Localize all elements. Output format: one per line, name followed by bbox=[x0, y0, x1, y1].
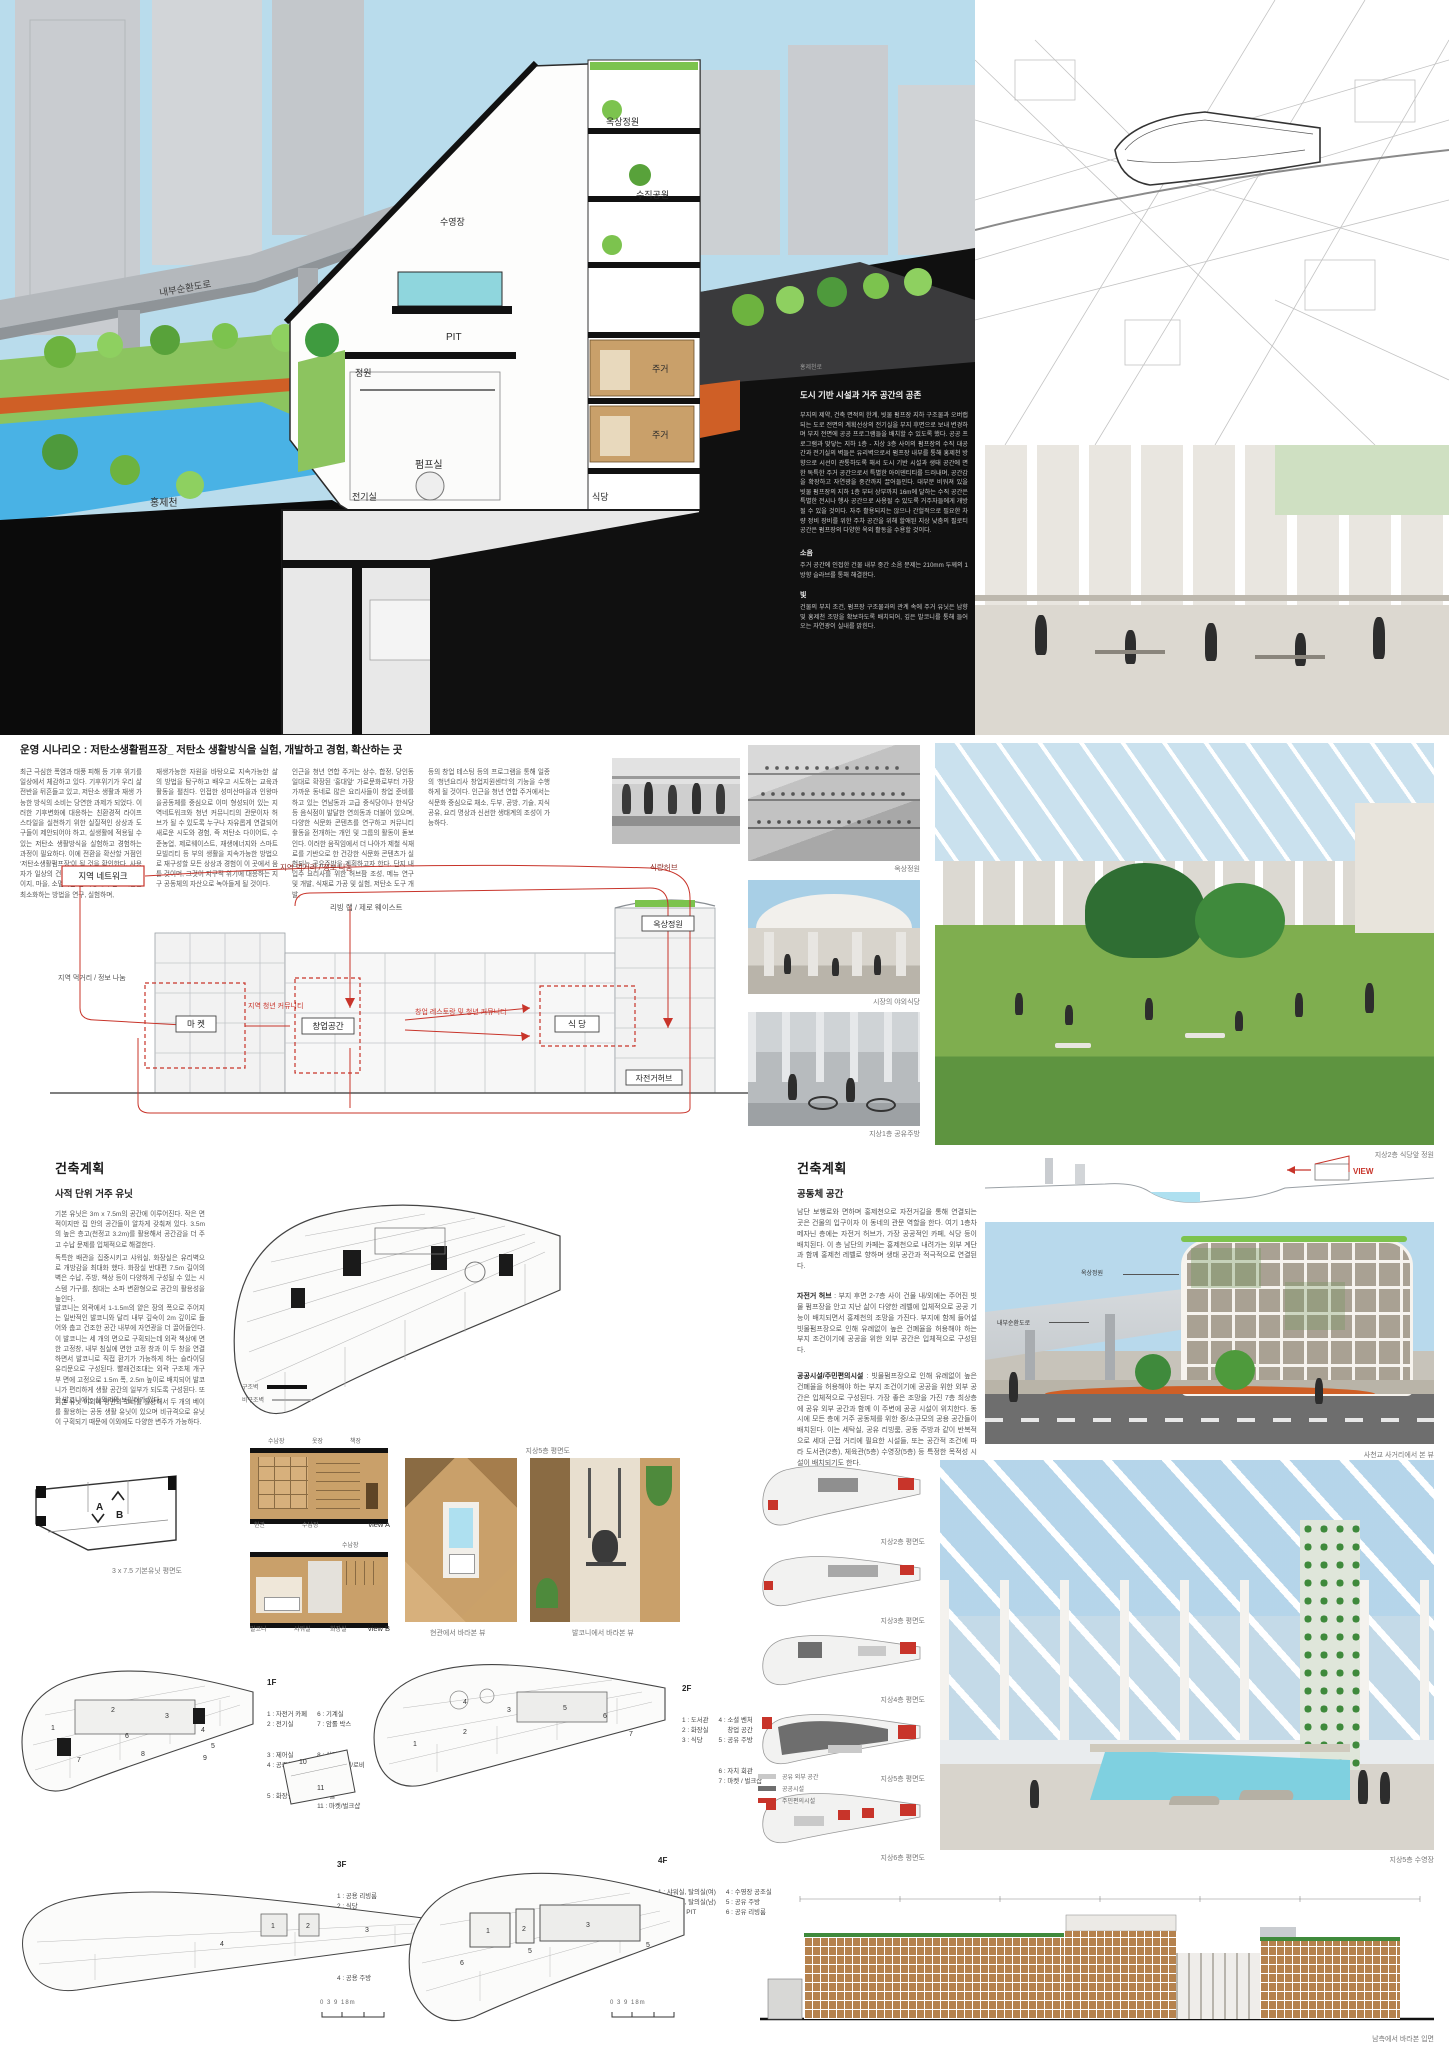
svg-text:5: 5 bbox=[563, 1705, 567, 1712]
interior-render bbox=[975, 445, 1449, 735]
atrium-pool-render bbox=[940, 1460, 1434, 1850]
svg-text:10: 10 bbox=[299, 1759, 307, 1766]
unit-plan-caption: 3 x 7.5 기본유닛 평면도 bbox=[60, 1566, 182, 1576]
corridor-render-caption: 현관에서 바라본 뷰 bbox=[430, 1628, 540, 1638]
svg-text:3: 3 bbox=[507, 1707, 511, 1714]
kitchen-photo bbox=[612, 758, 740, 844]
viewB-name: view B bbox=[368, 1624, 390, 1633]
building-street-caption: 사천교 사거리에서 본 뷰 bbox=[1234, 1450, 1434, 1460]
startup-box-label: 창업공간 bbox=[312, 1021, 343, 1031]
svg-text:1: 1 bbox=[486, 1928, 490, 1935]
electrical-label: 전기실 bbox=[352, 492, 377, 502]
callout-roof-garden: 옥상정원 bbox=[1081, 1268, 1103, 1277]
unit-view-a: 수납장 옷장 책장 현관 수납장 view A bbox=[250, 1436, 390, 1536]
unit-view-b: 수납장 발코니 샤워실 화장실 view B bbox=[250, 1540, 390, 1640]
vertical-park-label: 수직공원 bbox=[636, 190, 669, 200]
arch-left-p3: 발코니는 외곽에서 1-1.5m의 얕은 장의 폭으로 주어지는 일반적인 발코… bbox=[55, 1304, 205, 1406]
legend-resident-swatch bbox=[758, 1798, 776, 1803]
arch-right-p3-lead: 공공시설/주민편의시설 bbox=[797, 1373, 863, 1380]
viewA-label-closet: 옷장 bbox=[312, 1436, 323, 1445]
housing-upper-label: 주거 bbox=[652, 364, 669, 374]
viewA-name: view A bbox=[368, 1520, 390, 1529]
pit-label: PIT bbox=[446, 332, 462, 343]
plan-5f-caption: 지상5층 평면도 bbox=[470, 1446, 570, 1456]
flow-startup-rest-label: 창업 레스토랑 및 청년 커뮤니티 bbox=[415, 1007, 507, 1016]
svg-text:5: 5 bbox=[211, 1743, 215, 1750]
building-street-render: 옥상정원 내부순환도로 bbox=[985, 1222, 1434, 1444]
scenario-col4: 등의 창업 테스팅 등의 프로그램을 통해 일종의 '청년요리사 창업지원센터'… bbox=[428, 768, 550, 829]
svg-text:4: 4 bbox=[463, 1699, 467, 1706]
mini-plan-5f bbox=[758, 1709, 925, 1769]
viewA-label-shelf: 책장 bbox=[350, 1436, 361, 1445]
unit-render-corridor bbox=[405, 1458, 517, 1622]
svg-text:2: 2 bbox=[306, 1923, 310, 1930]
side-text-heading: 도시 기반 시설과 거주 공간의 공존 bbox=[800, 389, 968, 401]
viewA-label-entry: 현관 bbox=[254, 1520, 265, 1529]
legend-public-label: 공공시설 bbox=[782, 1784, 804, 1793]
view-label: VIEW bbox=[1353, 1167, 1374, 1176]
atrium-caption: 지상5층 수영장 bbox=[1234, 1855, 1434, 1865]
mini-plans-legend: 공유 외부 공간 공공시설 주민편의시설 bbox=[758, 1772, 818, 1805]
mini-plan-4f-caption: 지상4층 평면도 bbox=[758, 1695, 925, 1705]
plan-1f-annex: 10 11 bbox=[277, 1746, 357, 1808]
nonstruct-wall-label: 비구조벽 bbox=[242, 1395, 264, 1404]
balcony-render-caption: 발코니에서 바라본 뷰 bbox=[572, 1628, 682, 1638]
svg-text:2: 2 bbox=[111, 1707, 115, 1714]
flow-top-right-label: 식량허브 bbox=[650, 863, 678, 872]
arch-left-p4: 기본 유닛 이외에 평면의 코너를 활용해서 두 개의 베이를 활용하는 공동 … bbox=[55, 1398, 205, 1429]
noise-heading: 소음 bbox=[800, 548, 968, 558]
mini-plan-3f-caption: 지상3층 평면도 bbox=[758, 1616, 925, 1626]
market-dining-caption: 시장의 야외식당 bbox=[748, 997, 920, 1007]
viewB-label-storage: 수납장 bbox=[342, 1540, 359, 1549]
network-box-label: 지역 네트워크 bbox=[78, 871, 127, 881]
flow-youth-label: 지역 청년 커뮤니티 bbox=[248, 1001, 303, 1010]
legend-shared-outdoor-label: 공유 외부 공간 bbox=[782, 1772, 818, 1781]
arch-right-subheading: 공동체 공간 bbox=[797, 1186, 843, 1200]
scenario-title: 운영 시나리오 : 저탄소생활펌프장_ 저탄소 생활방식을 실험, 개발하고 경… bbox=[20, 742, 640, 757]
arch-right-p2-lead: 자전거 허브 bbox=[797, 1293, 832, 1300]
svg-text:2: 2 bbox=[522, 1926, 526, 1933]
mini-plan-6f-caption: 지상6층 평면도 bbox=[758, 1853, 925, 1863]
side-text-body: 부지의 제약, 건축 면적의 한계, 빗물 펌프장 지하 구조물과 오버랩되는 … bbox=[800, 411, 968, 536]
viewA-label-storage: 수납장 bbox=[268, 1436, 285, 1445]
svg-text:8: 8 bbox=[141, 1751, 145, 1758]
light-heading: 빛 bbox=[800, 590, 968, 600]
plan-3f: 1 2 3 4 bbox=[15, 1880, 445, 2005]
unit-plan: A B bbox=[28, 1462, 183, 1562]
unit-render-balcony bbox=[530, 1458, 680, 1622]
svg-text:9: 9 bbox=[203, 1755, 207, 1762]
market-dining-photo bbox=[748, 880, 920, 994]
callout-inner-ring-road: 내부순환도로 bbox=[997, 1318, 1030, 1327]
plan-2f-title: 2F bbox=[682, 1684, 762, 1693]
plan-1f: 12 34 56 78 9 bbox=[15, 1660, 260, 1810]
arch-left-subheading: 사적 단위 거주 유닛 bbox=[55, 1186, 133, 1200]
svg-text:7: 7 bbox=[77, 1757, 81, 1764]
arch-left-p1: 기본 유닛은 3m x 7.5m의 공간에 이루어진다. 작은 면적이지만 집 … bbox=[55, 1210, 205, 1251]
svg-text:3: 3 bbox=[586, 1922, 590, 1929]
mini-plan-2f-caption: 지상2층 평면도 bbox=[758, 1537, 925, 1547]
mini-plan-4f bbox=[758, 1630, 925, 1690]
arch-right-p2: 자전거 허브 : 부지 후면 2-7층 사이 건물 내/외에는 주어진 빗물 펌… bbox=[797, 1292, 977, 1357]
site-section-diagram: VIEW bbox=[985, 1148, 1434, 1214]
wall-legend: 구조벽 비구조벽 bbox=[242, 1382, 312, 1404]
svg-text:3: 3 bbox=[365, 1927, 369, 1934]
flow-left-label: 지역 먹거리 / 정보 나눔 bbox=[58, 973, 126, 982]
mini-plan-2f bbox=[758, 1460, 925, 1532]
pump-room-label: 펌프실 bbox=[415, 459, 443, 471]
mini-plan-3f bbox=[758, 1551, 925, 1611]
market-box-label: 마 켓 bbox=[187, 1019, 205, 1029]
presentation-board: 내부순환도로 홍제천 bbox=[0, 0, 1449, 2048]
svg-text:4: 4 bbox=[201, 1727, 205, 1734]
svg-text:2: 2 bbox=[463, 1729, 467, 1736]
plan-2f-legend: 2F 1 : 도서관2 : 화장실3 : 식당 4 : 소셜 벤처 창업 공간5… bbox=[682, 1684, 762, 1808]
arch-right-p1: 남단 보행로와 면하며 홍제천으로 자전거길을 통해 연결되는 곳은 건물의 입… bbox=[797, 1208, 977, 1273]
svg-text:4: 4 bbox=[220, 1941, 224, 1948]
roofgarden-box-label: 옥상정원 bbox=[653, 919, 682, 929]
program-flow-diagram: 지역 네트워크 마 켓 창업공간 식 당 옥상정원 자전거허브 지역 먹거리 /… bbox=[50, 858, 750, 1118]
svg-text:3: 3 bbox=[165, 1713, 169, 1720]
arch-right-heading: 건축계획 bbox=[797, 1158, 847, 1177]
south-elevation bbox=[760, 1893, 1434, 2033]
svg-text:6: 6 bbox=[460, 1960, 464, 1967]
legend-shared-outdoor-swatch bbox=[758, 1774, 776, 1779]
dining-label: 식당 bbox=[592, 492, 609, 502]
svg-text:1: 1 bbox=[413, 1741, 417, 1748]
street-name-label: 홍제천로 bbox=[800, 362, 968, 371]
svg-text:1: 1 bbox=[51, 1725, 55, 1732]
shared-kitchen-photo bbox=[748, 1012, 920, 1126]
dining-box-label: 식 당 bbox=[568, 1019, 586, 1029]
arch-left-heading: 건축계획 bbox=[55, 1158, 105, 1177]
svg-text:1: 1 bbox=[271, 1923, 275, 1930]
svg-text:7: 7 bbox=[629, 1731, 633, 1738]
flow-top-label: 지역 먹거리 / 정보 나눔 bbox=[280, 862, 353, 872]
flow-mid-label: 리빙 랩 / 제로 웨이스트 bbox=[330, 902, 403, 912]
svg-text:6: 6 bbox=[125, 1733, 129, 1740]
viewA-label-storage2: 수납장 bbox=[302, 1520, 319, 1529]
legend-resident-label: 주민편의시설 bbox=[782, 1796, 815, 1805]
garden-label: 정원 bbox=[355, 368, 372, 378]
unit-arrow-a: A bbox=[96, 1502, 103, 1513]
svg-text:5: 5 bbox=[528, 1948, 532, 1955]
plan-5f bbox=[225, 1192, 570, 1442]
housing-lower-label: 주거 bbox=[652, 430, 669, 440]
scale-bar-left: 0 3 9 18m bbox=[320, 2000, 386, 2024]
plan-3f-title: 3F bbox=[337, 1860, 377, 1869]
arch-left-p2: 독특한 배관을 집중시키고 샤워실, 화장실은 유리벽으로 개방감을 최대화 했… bbox=[55, 1254, 205, 1305]
viewB-label-shower: 샤워실 bbox=[294, 1624, 311, 1633]
svg-text:5: 5 bbox=[646, 1942, 650, 1949]
section-side-text: 홍제천로 도시 기반 시설과 거주 공간의 공존 부지의 제약, 건축 면적의 … bbox=[800, 362, 968, 632]
plan-1f-title: 1F bbox=[267, 1678, 365, 1687]
light-body: 건물의 부지 조건, 펌프장 구조물과의 관계 속에 주거 유닛은 남향 및 홍… bbox=[800, 603, 968, 632]
legend-public-swatch bbox=[758, 1786, 776, 1791]
noise-body: 주거 공간에 인접한 건물 내부 중간 소음 문제는 210mm 두께의 1방향… bbox=[800, 561, 968, 580]
struct-wall-label: 구조벽 bbox=[242, 1382, 259, 1391]
struct-wall-swatch bbox=[267, 1385, 307, 1389]
bike-box-label: 자전거허브 bbox=[636, 1073, 673, 1083]
svg-text:11: 11 bbox=[317, 1785, 324, 1792]
roof-garden-caption: 옥상정원 bbox=[748, 864, 920, 874]
aerial-line-drawing bbox=[975, 0, 1449, 445]
viewB-label-toilet: 화장실 bbox=[330, 1624, 347, 1633]
svg-text:6: 6 bbox=[603, 1713, 607, 1720]
elevation-caption: 남측에서 바라본 입면 bbox=[1234, 2034, 1434, 2044]
courtyard-render bbox=[935, 743, 1434, 1145]
scale-bar-right: 0 3 9 18m bbox=[610, 2000, 676, 2024]
arch-right-p3: 공공시설/주민편의시설 : 빗물펌프장으로 인해 유례없이 높은 건폐율을 허용… bbox=[797, 1372, 977, 1470]
viewB-label-balcony: 발코니 bbox=[250, 1624, 267, 1633]
roof-garden-label: 옥상정원 bbox=[606, 117, 639, 127]
unit-arrow-b: B bbox=[116, 1510, 123, 1521]
pool-label: 수영장 bbox=[440, 217, 465, 227]
stream-label: 홍제천 bbox=[150, 496, 178, 509]
roof-garden-photo bbox=[748, 745, 920, 861]
nonstruct-wall-swatch bbox=[272, 1399, 312, 1401]
plan-2f: 12 34 56 7 bbox=[367, 1652, 673, 1812]
shared-kitchen-caption: 지상1층 공유주방 bbox=[748, 1129, 920, 1139]
